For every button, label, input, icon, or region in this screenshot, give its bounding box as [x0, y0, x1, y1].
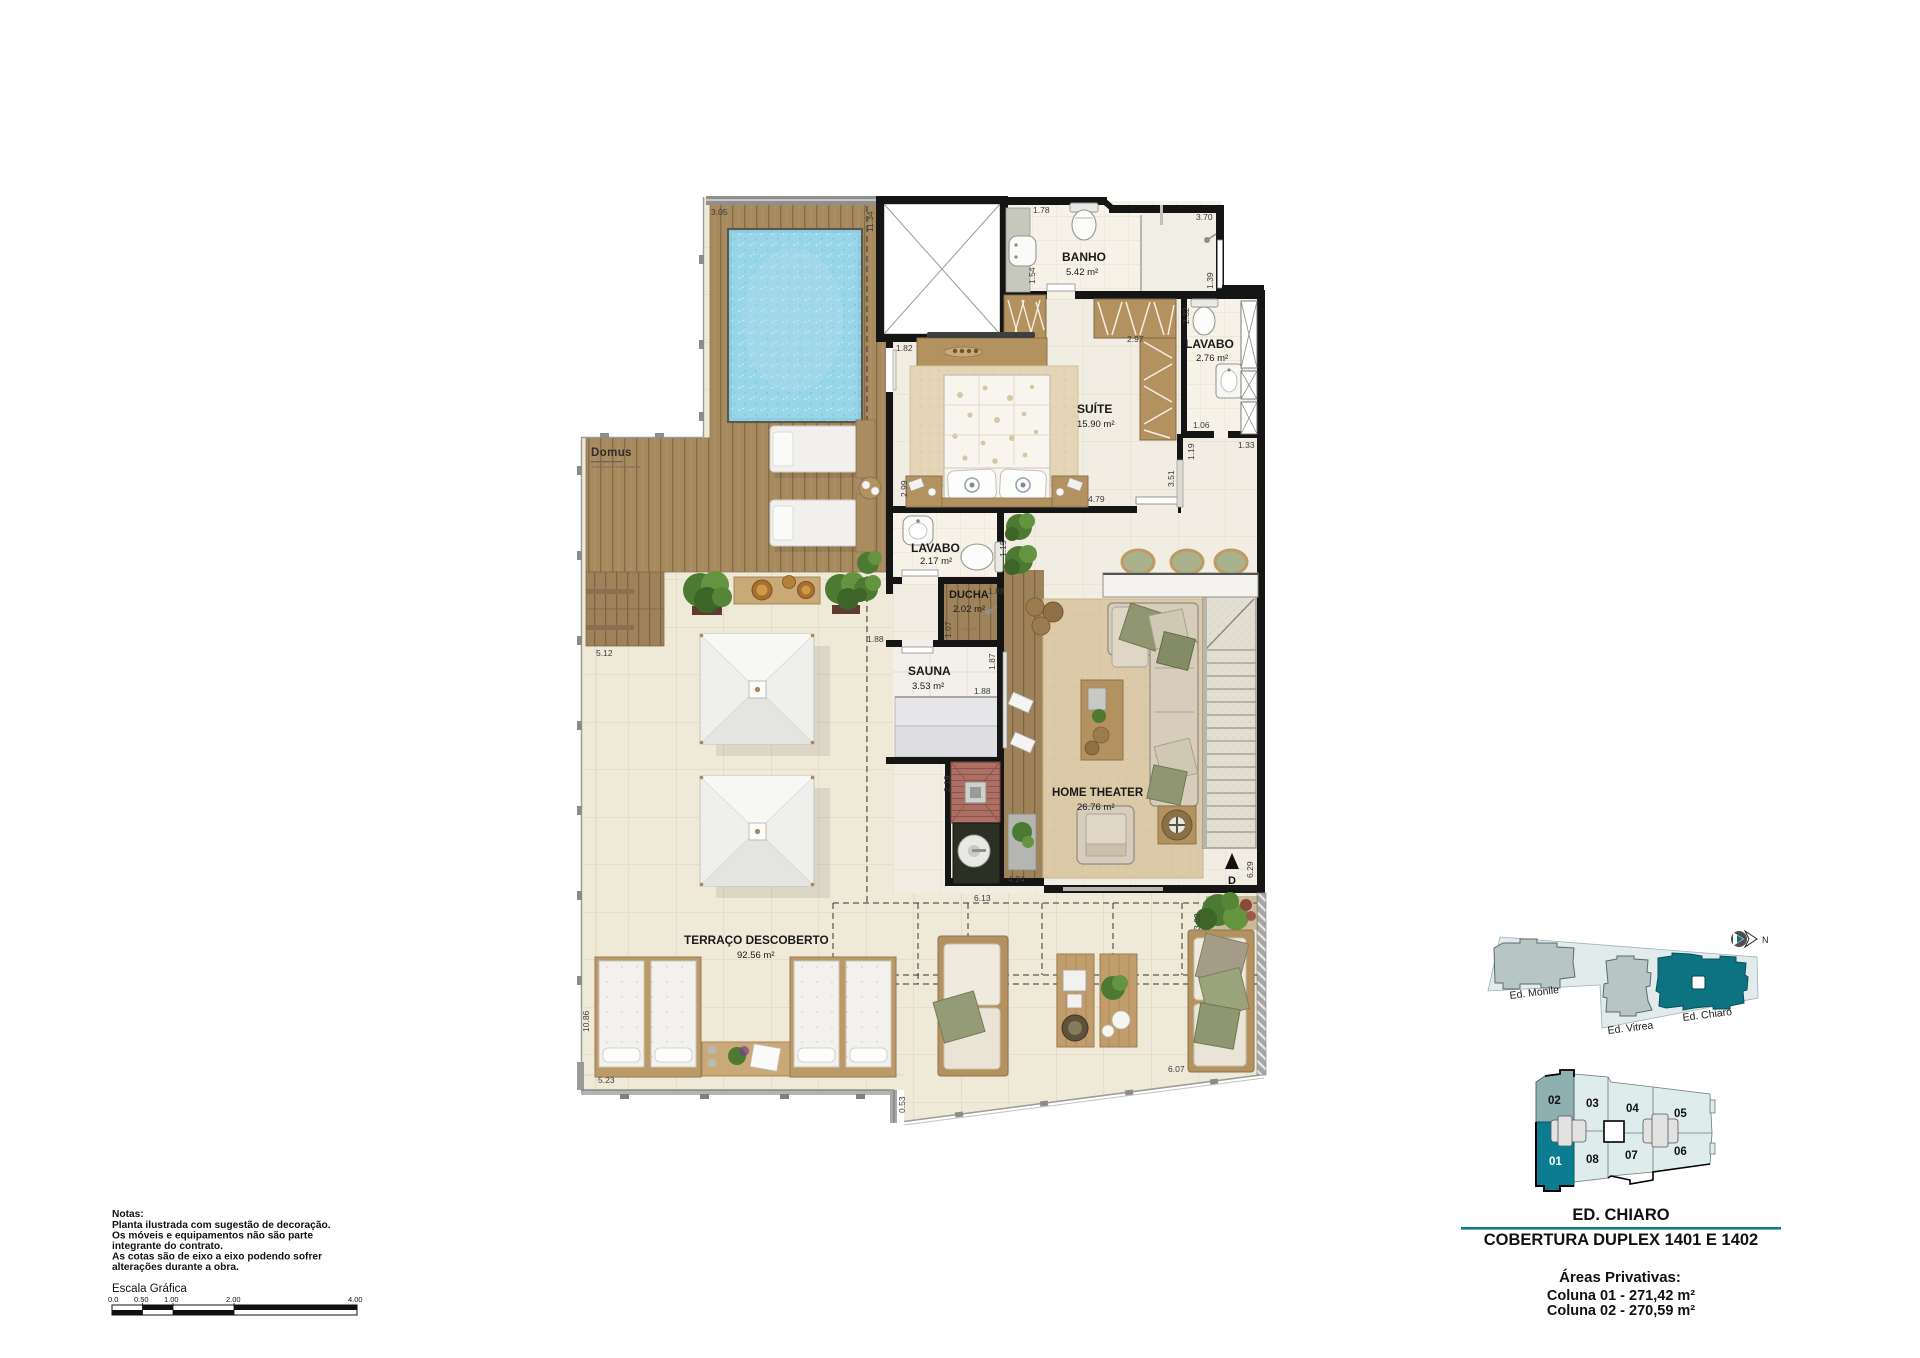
svg-text:1.78: 1.78: [1033, 205, 1050, 215]
svg-text:alterações durante a obra.: alterações durante a obra.: [112, 1262, 239, 1273]
svg-text:3.02: 3.02: [1192, 913, 1202, 930]
svg-text:1.15: 1.15: [998, 540, 1008, 557]
svg-text:1.39: 1.39: [1205, 272, 1215, 289]
svg-text:Planta ilustrada com sugestão: Planta ilustrada com sugestão de decoraç…: [112, 1220, 331, 1231]
svg-text:1.06: 1.06: [1193, 420, 1210, 430]
svg-text:construtora e incorporadora: construtora e incorporadora: [591, 464, 641, 469]
svg-text:TERRAÇO DESCOBERTO: TERRAÇO DESCOBERTO: [684, 933, 829, 947]
svg-text:HOME THEATER: HOME THEATER: [1052, 787, 1144, 799]
svg-text:integrante do contrato.: integrante do contrato.: [112, 1241, 223, 1252]
svg-text:2.76 m²: 2.76 m²: [1196, 353, 1228, 364]
svg-text:SUÍTE: SUÍTE: [1077, 401, 1112, 416]
svg-text:0.53: 0.53: [897, 1096, 907, 1113]
svg-text:Áreas Privativas:: Áreas Privativas:: [1559, 1269, 1681, 1286]
svg-text:1.82: 1.82: [896, 343, 913, 353]
svg-text:Domus: Domus: [591, 447, 632, 459]
svg-text:04: 04: [1626, 1103, 1639, 1115]
svg-text:5.12: 5.12: [596, 648, 613, 658]
svg-text:1.07: 1.07: [943, 621, 953, 638]
svg-text:LAVABO: LAVABO: [1185, 337, 1234, 351]
svg-text:3.05: 3.05: [711, 207, 728, 217]
svg-text:3.70: 3.70: [1196, 212, 1213, 222]
svg-text:2.17 m²: 2.17 m²: [920, 556, 952, 567]
svg-text:SAUNA: SAUNA: [908, 664, 951, 678]
svg-text:Coluna 02 - 270,59 m²: Coluna 02 - 270,59 m²: [1547, 1303, 1695, 1319]
svg-text:1.00: 1.00: [164, 1295, 179, 1304]
svg-text:Notas:: Notas:: [112, 1209, 144, 1220]
svg-text:03: 03: [1586, 1098, 1599, 1110]
svg-text:0.50: 0.50: [134, 1295, 149, 1304]
svg-text:10.86: 10.86: [581, 1010, 591, 1032]
svg-text:Os móveis e equipamentos não s: Os móveis e equipamentos não são parte: [112, 1231, 313, 1242]
svg-text:02: 02: [1548, 1095, 1561, 1107]
svg-text:COBERTURA DUPLEX 1401 E 1402: COBERTURA DUPLEX 1401 E 1402: [1484, 1231, 1758, 1249]
svg-text:05: 05: [1674, 1108, 1687, 1120]
svg-text:11.34: 11.34: [865, 211, 875, 232]
svg-text:01: 01: [1549, 1156, 1562, 1168]
svg-text:3.51: 3.51: [1166, 470, 1176, 487]
svg-text:ED. CHIARO: ED. CHIARO: [1572, 1206, 1669, 1224]
svg-text:4.00: 4.00: [348, 1295, 363, 1304]
svg-text:08: 08: [1586, 1154, 1599, 1166]
svg-text:4.79: 4.79: [1088, 494, 1105, 504]
svg-text:0.0: 0.0: [108, 1295, 118, 1304]
svg-text:5.42 m²: 5.42 m²: [1066, 267, 1098, 278]
svg-text:1.54: 1.54: [1027, 267, 1037, 284]
svg-text:Escala Gráfica: Escala Gráfica: [112, 1283, 187, 1295]
svg-text:1.87: 1.87: [987, 653, 997, 670]
svg-text:2.32: 2.32: [1181, 307, 1191, 324]
svg-text:3.53 m²: 3.53 m²: [912, 681, 944, 692]
svg-text:BANHO: BANHO: [1062, 250, 1106, 264]
svg-text:2.02 m²: 2.02 m²: [953, 604, 985, 615]
svg-text:Coluna 01 - 271,42 m²: Coluna 01 - 271,42 m²: [1547, 1288, 1695, 1304]
svg-text:6.13: 6.13: [974, 893, 991, 903]
svg-text:1.88: 1.88: [988, 586, 1005, 596]
svg-text:2.00: 2.00: [226, 1295, 241, 1304]
svg-text:6.07: 6.07: [1168, 1064, 1185, 1074]
svg-text:06: 06: [1674, 1146, 1687, 1158]
svg-text:2.99: 2.99: [899, 480, 909, 497]
svg-text:2.97: 2.97: [1127, 334, 1144, 344]
svg-text:1.19: 1.19: [1186, 443, 1196, 460]
svg-text:15.90 m²: 15.90 m²: [1077, 419, 1115, 430]
svg-text:5.23: 5.23: [598, 1075, 615, 1085]
svg-text:As cotas são de eixo a eixo po: As cotas são de eixo a eixo podendo sofr…: [112, 1252, 322, 1263]
svg-text:6.29: 6.29: [1245, 861, 1255, 878]
svg-text:26.76 m²: 26.76 m²: [1077, 802, 1115, 813]
svg-text:4.24: 4.24: [1008, 874, 1025, 884]
svg-text:1.88: 1.88: [974, 686, 991, 696]
svg-text:07: 07: [1625, 1150, 1638, 1162]
svg-text:1.33: 1.33: [1238, 440, 1255, 450]
svg-text:92.56 m²: 92.56 m²: [737, 950, 775, 961]
svg-text:1.88: 1.88: [867, 634, 884, 644]
svg-text:N: N: [1762, 935, 1769, 945]
svg-text:DUCHA: DUCHA: [949, 589, 989, 601]
svg-text:2.19: 2.19: [942, 775, 952, 792]
svg-text:LAVABO: LAVABO: [911, 541, 960, 555]
